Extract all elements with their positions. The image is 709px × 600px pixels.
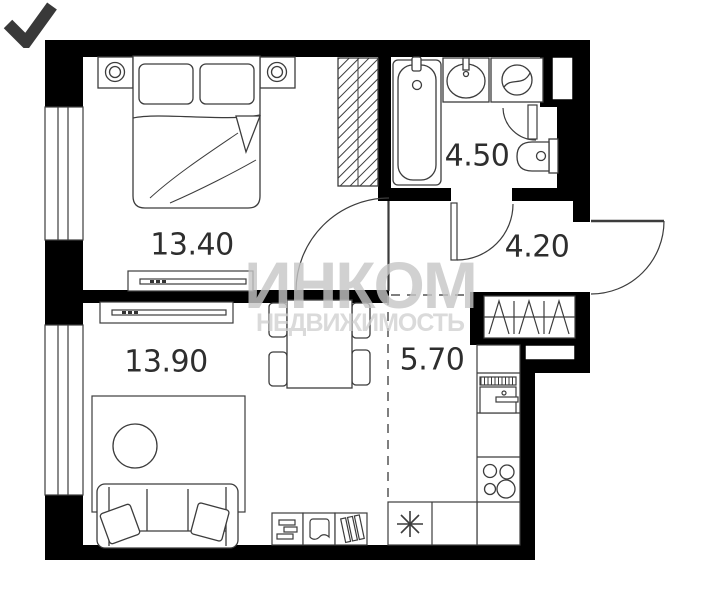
- bathroom-sink: [443, 58, 489, 102]
- room-label-bathroom: 4.50: [445, 139, 510, 174]
- wardrobe-bedroom: [338, 58, 378, 186]
- media-shelf-icons: [272, 513, 367, 545]
- washing-machine: [491, 58, 543, 102]
- room-label-living-room: 13.90: [124, 345, 207, 380]
- window-living-room: [45, 325, 83, 495]
- door-bedroom: [296, 198, 389, 291]
- floor-plan-drawing: [0, 0, 709, 600]
- tv-console-living: [100, 302, 233, 323]
- door-laundry-nook: [503, 105, 537, 140]
- double-bed: [133, 56, 260, 208]
- floor-plan: 13.40 13.90 4.50 4.20 5.70 ИНКОМ НЕДВИЖИ…: [0, 0, 709, 600]
- window-bedroom: [45, 107, 83, 240]
- room-label-bedroom: 13.40: [150, 228, 233, 263]
- zone-boundary-dashed: [388, 295, 470, 502]
- door-entrance: [591, 221, 664, 294]
- nightstand-right: [260, 57, 295, 88]
- room-label-hallway: 4.20: [505, 230, 570, 265]
- sofa: [97, 484, 238, 548]
- oven: [480, 377, 518, 413]
- nightstand-left: [98, 57, 133, 88]
- tv-console-bedroom: [128, 271, 253, 291]
- toilet: [517, 139, 558, 173]
- room-label-kitchen: 5.70: [400, 343, 465, 378]
- closet-hallway: [484, 296, 575, 338]
- coffee-table: [113, 424, 157, 468]
- dining-set: [269, 300, 370, 388]
- bathtub: [393, 57, 441, 185]
